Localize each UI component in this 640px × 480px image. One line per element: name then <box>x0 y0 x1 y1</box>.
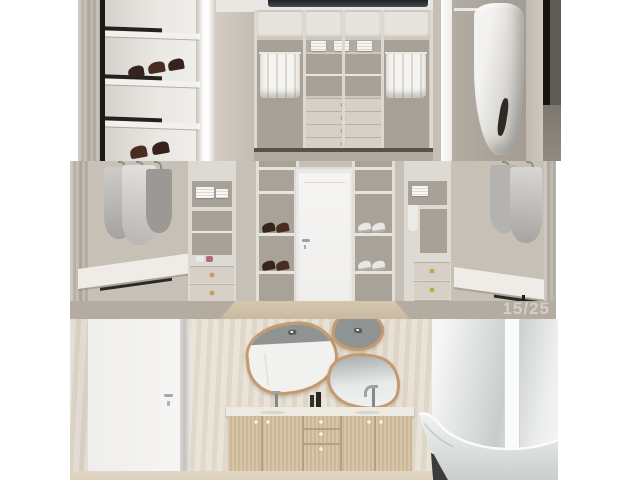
black-edge-band <box>543 0 550 105</box>
cabinet-trim <box>381 10 384 150</box>
hanging-white-garment <box>408 205 418 231</box>
cabinet-knob <box>379 420 383 424</box>
door-lock <box>167 401 170 406</box>
cabinet-knob <box>367 420 371 424</box>
gray-panel-lower <box>543 105 561 161</box>
top-cubby <box>305 12 342 38</box>
top-cubby <box>344 12 381 38</box>
dark-gray-panel <box>550 0 561 105</box>
photo-closet-door: 15/25 <box>70 161 556 319</box>
soap-bottle <box>316 392 321 408</box>
black-shelf-rail <box>100 278 172 291</box>
drawer <box>190 266 234 283</box>
sink-basin <box>354 411 380 414</box>
wall-shelf <box>454 267 552 301</box>
shoe-shelf <box>355 271 392 274</box>
shoe-shelf <box>259 191 296 194</box>
door-handle <box>302 239 310 242</box>
shoe-shelf <box>259 233 296 236</box>
door-jamb <box>180 319 190 480</box>
door-handle <box>164 394 173 397</box>
mirror-reflection-edge <box>264 354 268 386</box>
folded-clothes <box>357 41 372 51</box>
sink-basin <box>260 411 286 414</box>
cabinet-trim <box>254 10 257 150</box>
hanging-white-shirts <box>386 54 426 98</box>
gallery-photo-collage: 15/25 <box>0 0 640 480</box>
faucet-spout <box>364 385 378 397</box>
vanity-cabinet <box>228 416 412 472</box>
shoe-shelf <box>259 167 296 170</box>
photo-closet-shelves <box>78 0 561 161</box>
cabinet-seam <box>374 416 376 472</box>
shelf-box <box>420 209 447 253</box>
shoe-shelf <box>355 191 392 194</box>
mirror-reflection-spotlight <box>354 327 363 333</box>
drawer-seam <box>302 443 340 445</box>
wall-shelf <box>78 253 190 289</box>
drawer-knob <box>319 432 323 436</box>
angled-side-wall <box>216 0 254 161</box>
faucet-spout <box>272 391 281 394</box>
top-cubby <box>383 12 429 38</box>
folded-clothes <box>311 41 326 51</box>
cabinet-seam <box>340 416 342 472</box>
shoe-column <box>352 161 395 309</box>
cabinet-trim <box>303 10 306 150</box>
gray-tee <box>510 167 542 243</box>
recessed-ceiling-light <box>268 0 428 7</box>
cabinet-knob <box>266 420 270 424</box>
drawer <box>414 281 450 299</box>
shoe-shelf <box>259 271 296 274</box>
hanging-white-shirts <box>260 54 300 98</box>
drawer-seam <box>302 428 340 430</box>
white-pillar <box>441 0 452 161</box>
white-door <box>88 319 180 480</box>
gray-tank-top <box>146 169 172 233</box>
vanity-countertop <box>226 407 414 416</box>
freestanding-bathtub <box>418 409 558 480</box>
marble-wall-strip <box>78 0 101 161</box>
small-pink-item <box>206 256 213 262</box>
photo-bathroom <box>70 319 558 480</box>
small-item <box>196 256 204 262</box>
bathroom-floor <box>70 471 432 480</box>
cabinet-knob <box>254 420 258 424</box>
drawer-knob <box>319 447 323 451</box>
folded-clothes <box>196 187 214 198</box>
drawer <box>414 262 450 280</box>
shoe-column <box>256 161 299 309</box>
bright-opening <box>196 0 216 161</box>
cabinet-seam <box>261 416 263 472</box>
wood-floor <box>220 301 410 319</box>
drawer <box>190 284 234 301</box>
closet-back-unit <box>254 10 440 150</box>
door-keyhole <box>304 245 306 249</box>
folded-clothes <box>412 186 428 196</box>
shelf-box <box>192 211 232 255</box>
mirror-reflection-spotlight <box>288 329 296 335</box>
marble-wall-strip <box>70 161 90 319</box>
folded-clothes <box>216 189 228 198</box>
cabinet-trim <box>342 10 345 150</box>
floor <box>254 152 440 161</box>
shelf-divider <box>192 231 232 233</box>
marble-wall-strip <box>70 319 88 480</box>
shoe-shelf <box>355 233 392 236</box>
gallery-counter: 15/25 <box>502 300 550 317</box>
marble-wall-strip <box>544 161 556 319</box>
top-cubby <box>257 12 303 38</box>
shoe-shelf <box>355 167 392 170</box>
drawer-knob <box>319 420 323 424</box>
side-panel <box>526 0 544 161</box>
